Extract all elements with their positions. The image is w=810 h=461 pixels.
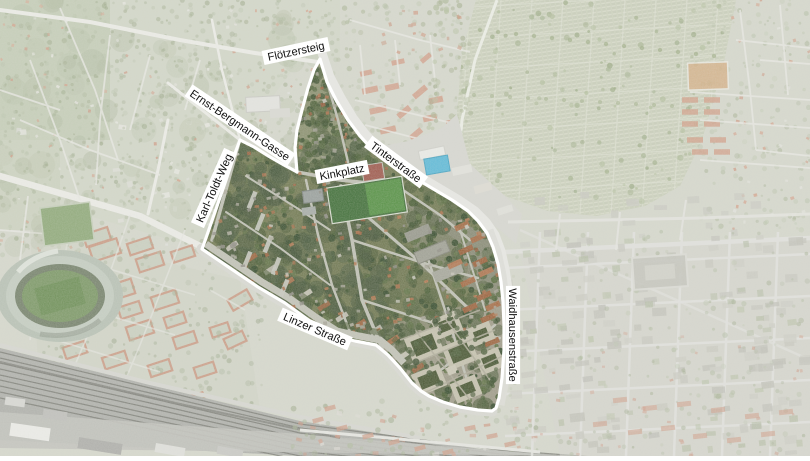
svg-text:Waidhausenstraße: Waidhausenstraße [506,288,518,381]
